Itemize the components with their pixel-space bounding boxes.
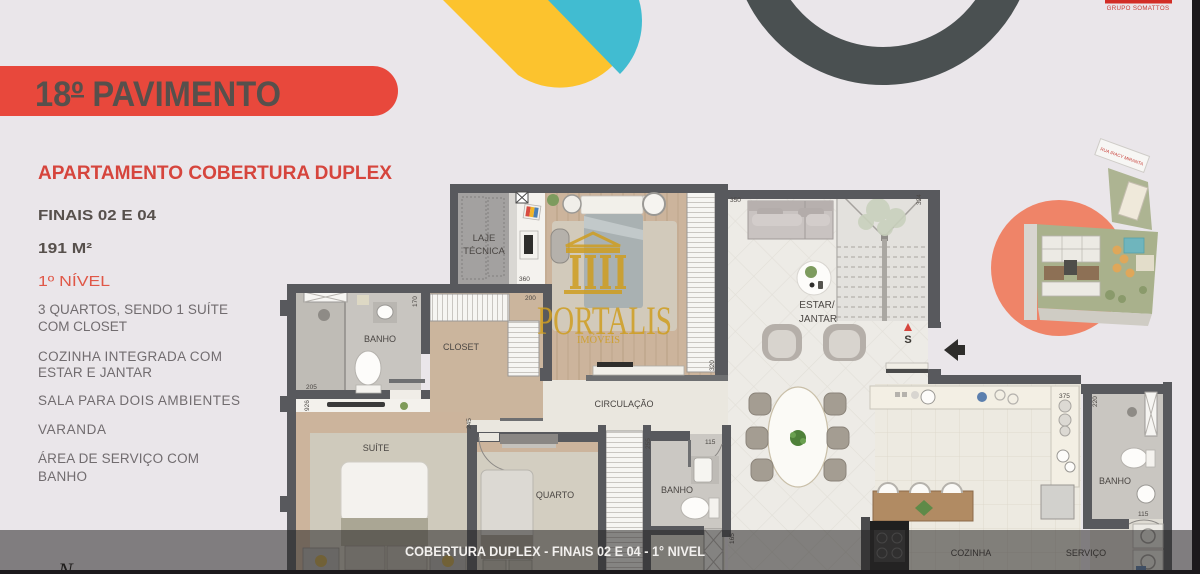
svg-text:BANHO: BANHO — [364, 334, 396, 344]
svg-text:GRUPO SOMATTOS: GRUPO SOMATTOS — [1107, 5, 1170, 12]
svg-text:ESTAR/: ESTAR/ — [799, 300, 835, 311]
svg-text:VARANDA: VARANDA — [38, 422, 106, 437]
svg-text:SUÍTE: SUÍTE — [363, 443, 390, 453]
svg-text:FINAIS 02 E 04: FINAIS 02 E 04 — [38, 208, 156, 224]
svg-text:BANHO: BANHO — [38, 469, 87, 484]
svg-text:CIRCULAÇÃO: CIRCULAÇÃO — [594, 399, 653, 409]
svg-text:COBERTURA DUPLEX - FINAIS 02 E: COBERTURA DUPLEX - FINAIS 02 E 04 - 1° N… — [405, 544, 705, 559]
svg-text:COM CLOSET: COM CLOSET — [38, 319, 127, 334]
svg-text:IMÓVEIS: IMÓVEIS — [577, 334, 620, 346]
svg-text:255: 255 — [645, 438, 652, 449]
svg-text:324: 324 — [916, 194, 923, 205]
svg-text:BANHO: BANHO — [661, 485, 693, 495]
svg-text:115: 115 — [705, 439, 716, 446]
svg-text:191 M²: 191 M² — [38, 241, 92, 257]
svg-text:QUARTO: QUARTO — [536, 490, 574, 500]
svg-text:COZINHA INTEGRADA COM: COZINHA INTEGRADA COM — [38, 349, 222, 364]
svg-text:220: 220 — [1092, 396, 1099, 407]
svg-text:320: 320 — [709, 360, 716, 371]
svg-text:926: 926 — [304, 400, 311, 411]
svg-text:BANHO: BANHO — [1099, 476, 1131, 486]
svg-text:ÁREA DE SERVIÇO COM: ÁREA DE SERVIÇO COM — [38, 451, 199, 466]
svg-text:350: 350 — [730, 197, 741, 204]
svg-text:200: 200 — [525, 295, 536, 302]
svg-text:170: 170 — [412, 296, 419, 307]
svg-text:LAJE: LAJE — [473, 233, 496, 244]
svg-text:TÉCNICA: TÉCNICA — [463, 246, 505, 257]
svg-text:APARTAMENTO COBERTURA DUPLEX: APARTAMENTO COBERTURA DUPLEX — [38, 163, 392, 184]
svg-text:1º NÍVEL: 1º NÍVEL — [38, 273, 110, 290]
svg-text:3 QUARTOS, SENDO 1 SUÍTE: 3 QUARTOS, SENDO 1 SUÍTE — [38, 302, 228, 317]
svg-text:SALA PARA DOIS AMBIENTES: SALA PARA DOIS AMBIENTES — [38, 393, 240, 408]
svg-text:115: 115 — [1138, 511, 1149, 518]
svg-text:CLOSET: CLOSET — [443, 342, 480, 352]
svg-text:JANTAR: JANTAR — [799, 314, 837, 325]
svg-text:ESTAR E JANTAR: ESTAR E JANTAR — [38, 365, 152, 380]
svg-text:205: 205 — [306, 384, 317, 391]
svg-text:18º PAVIMENTO: 18º PAVIMENTO — [35, 74, 281, 114]
svg-text:245: 245 — [466, 418, 473, 429]
svg-text:375: 375 — [1059, 393, 1070, 400]
svg-text:360: 360 — [519, 276, 530, 283]
svg-text:S: S — [904, 334, 911, 346]
